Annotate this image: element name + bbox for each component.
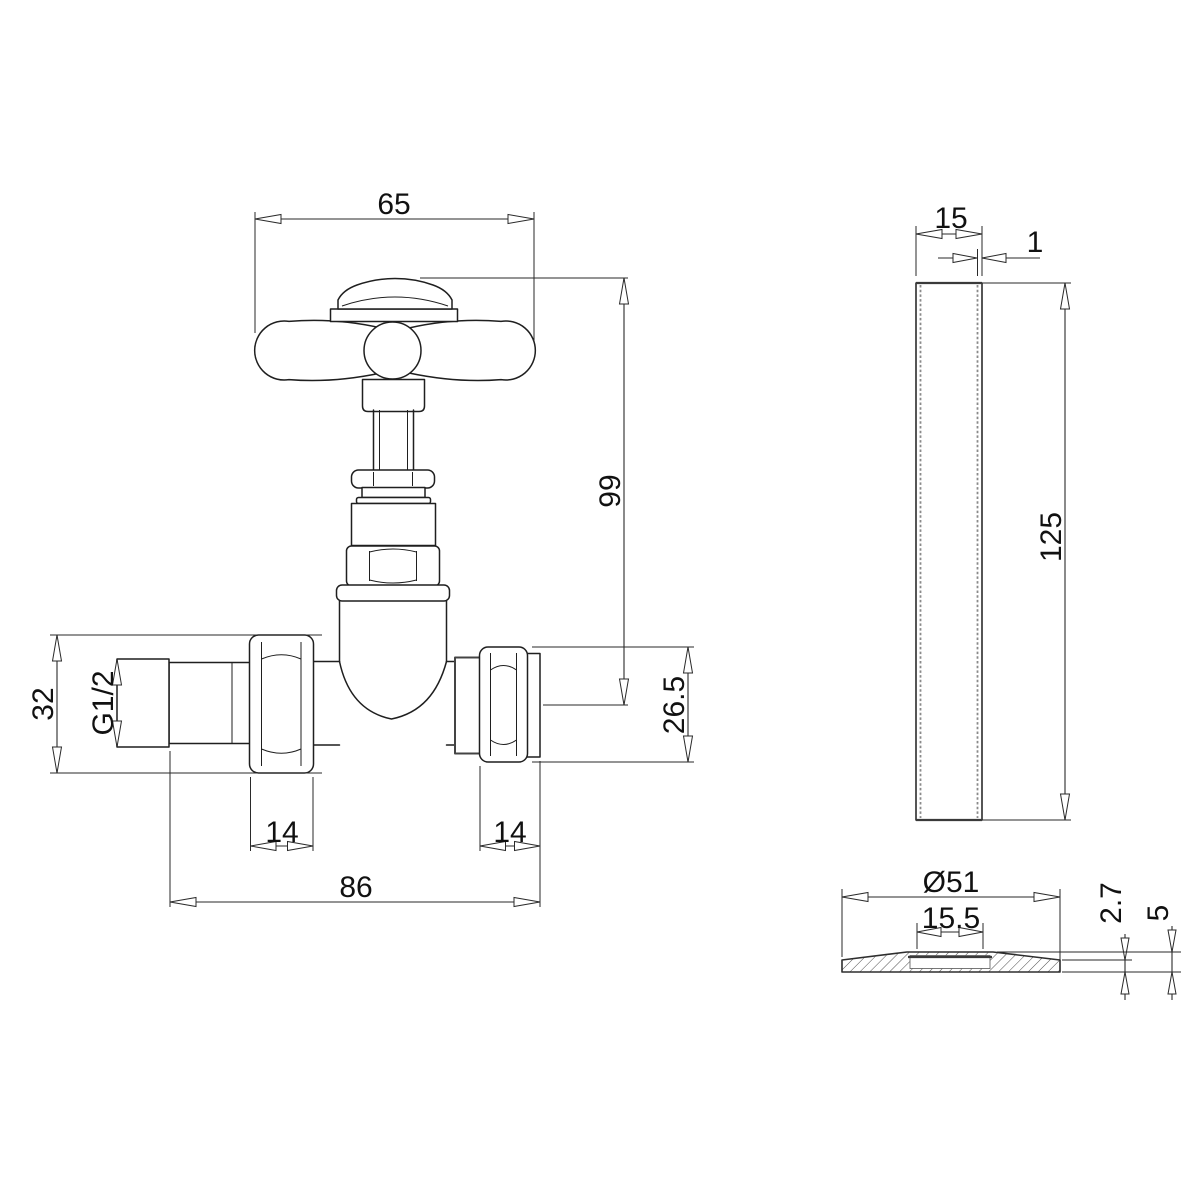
- dim-2-7-label: 2.7: [1095, 882, 1128, 924]
- dim-15-5-label: 15.5: [922, 902, 980, 935]
- dim-14-left: 14: [251, 777, 314, 851]
- arrow-down-icon: [620, 679, 629, 705]
- handle-dome-cap: [338, 279, 452, 310]
- dim-65-label: 65: [377, 188, 410, 221]
- dim-14-right-label: 14: [493, 816, 526, 849]
- thread-shank: [169, 663, 250, 744]
- male-thread-g12: [117, 659, 169, 747]
- body-u-curve: [340, 662, 447, 720]
- dim-26-5-label: 26.5: [658, 676, 691, 734]
- arrow-down-icon: [1061, 794, 1070, 820]
- stem-collar: [362, 488, 425, 498]
- arrow-right-icon: [1034, 893, 1060, 902]
- dim-86: 86: [170, 751, 540, 907]
- dim-g12-label: G1/2: [87, 670, 120, 735]
- arrow-down-icon: [1168, 930, 1176, 952]
- arrow-left-icon: [982, 254, 1006, 263]
- stem-ring: [357, 498, 431, 504]
- valve-body: [314, 601, 457, 745]
- collar-section-view: Ø51 15.5 2.7 5: [842, 866, 1181, 1000]
- arrow-up-icon: [684, 647, 693, 673]
- dim-15: 15: [916, 202, 982, 276]
- bonnet-hex: [347, 546, 440, 586]
- dim-5: 5: [997, 905, 1181, 1000]
- dim-14-right: 14: [480, 761, 540, 907]
- arrow-up-icon: [1168, 972, 1176, 994]
- dim-d51-label: Ø51: [923, 866, 980, 899]
- arrow-down-icon: [1121, 938, 1129, 960]
- arrow-right-icon: [514, 898, 540, 907]
- dim-1-label: 1: [1027, 226, 1044, 259]
- dim-15-label: 15: [934, 202, 967, 235]
- technical-drawing-sheet: 65 99 32 G1/2: [0, 0, 1200, 1200]
- packing-nut: [352, 470, 435, 488]
- outlet-sleeve: [455, 658, 480, 754]
- inlet-union-nut: [250, 635, 314, 773]
- pipe-side-view: 15 1 125: [916, 202, 1071, 820]
- arrow-left-icon: [255, 215, 281, 224]
- dim-99-label: 99: [594, 474, 627, 507]
- arrow-down-icon: [684, 736, 693, 762]
- arrow-up-icon: [1061, 283, 1070, 309]
- handle-center-boss: [364, 322, 421, 379]
- inlet-side: [117, 635, 314, 773]
- dim-15-5: 15.5: [917, 902, 983, 949]
- dim-125-label: 125: [1035, 512, 1068, 562]
- handle-plate: [331, 309, 458, 322]
- dim-2-7: 2.7: [1062, 882, 1181, 1000]
- arrow-left-icon: [170, 898, 196, 907]
- handle-left-arm: [255, 320, 381, 380]
- arrow-up-icon: [1121, 972, 1129, 994]
- dim-5-label: 5: [1142, 905, 1175, 922]
- valve-front-view: 65 99 32 G1/2: [27, 188, 694, 907]
- gland-body: [352, 504, 436, 546]
- dim-125: 125: [982, 283, 1071, 820]
- arrow-left-icon: [842, 893, 868, 902]
- dim-g12: G1/2: [87, 659, 122, 747]
- dim-32-label: 32: [27, 687, 60, 720]
- arrow-up-icon: [620, 278, 629, 304]
- arrow-right-icon: [508, 215, 534, 224]
- valve-stem-assembly: [337, 410, 450, 601]
- handle-right-arm: [409, 320, 535, 380]
- arrow-right-icon: [953, 254, 977, 263]
- dim-14-left-label: 14: [265, 816, 298, 849]
- valve-handle: [255, 279, 536, 412]
- arrow-up-icon: [53, 635, 62, 661]
- arrow-down-icon: [53, 747, 62, 773]
- dim-86-label: 86: [339, 871, 372, 904]
- outlet-side: [455, 647, 540, 762]
- radiator-valve-drawing: 65 99 32 G1/2: [0, 0, 1200, 1200]
- body-top-flange: [337, 585, 450, 601]
- handle-neck: [363, 380, 425, 412]
